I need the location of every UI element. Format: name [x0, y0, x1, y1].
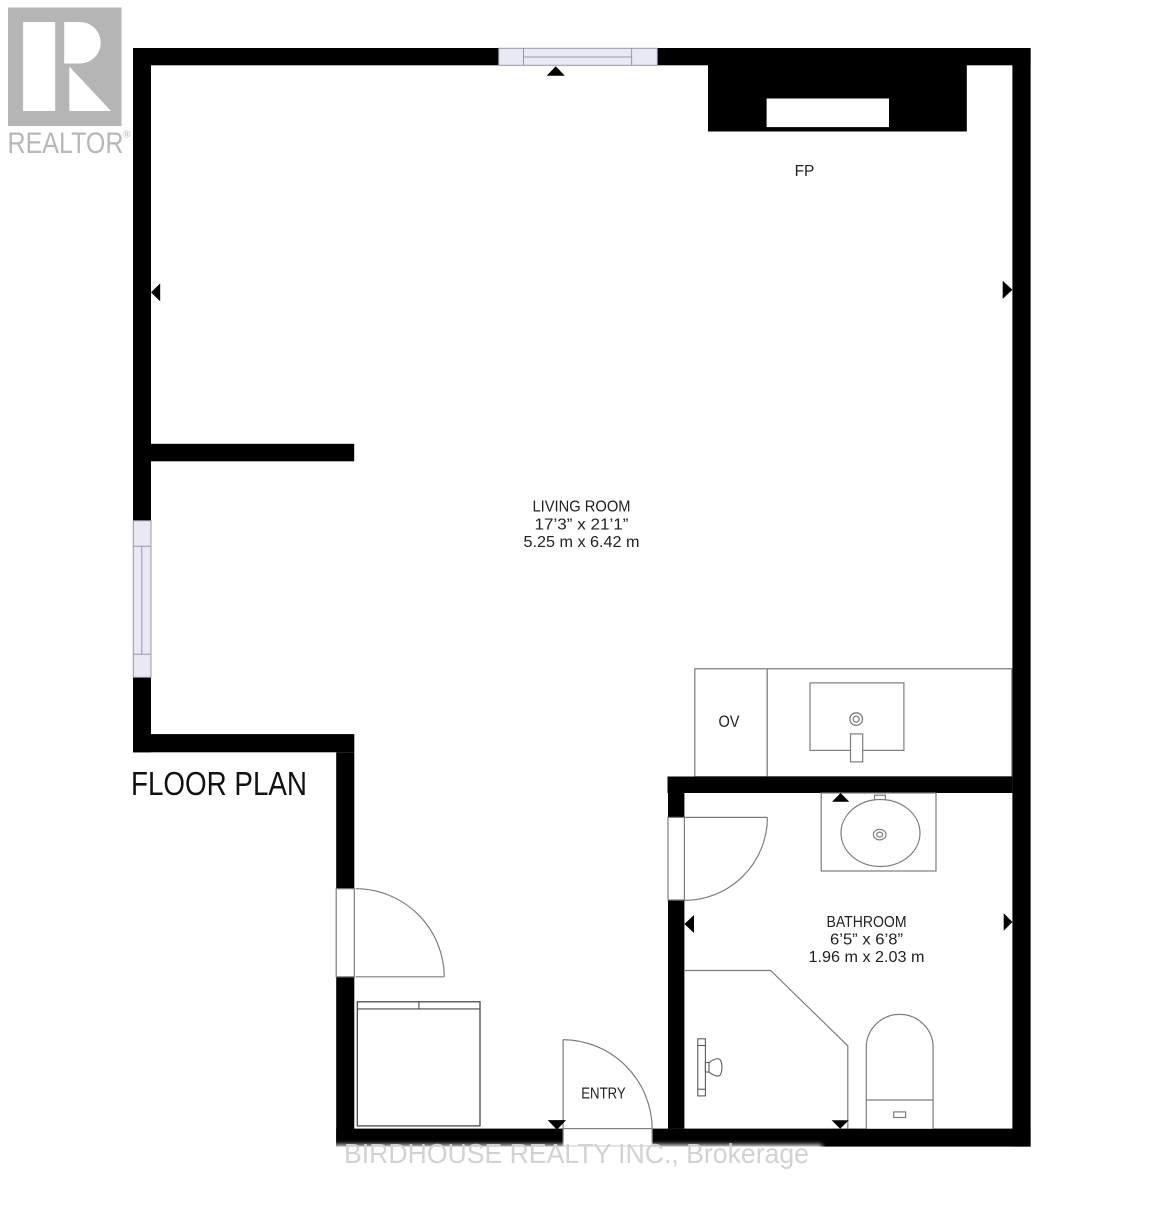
- svg-text:®: ®: [123, 130, 131, 141]
- svg-text:REALTOR: REALTOR: [8, 127, 124, 160]
- svg-text:5.25 m x 6.42 m: 5.25 m x 6.42 m: [524, 534, 640, 551]
- svg-text:LIVING ROOM: LIVING ROOM: [533, 499, 631, 516]
- svg-text:FLOOR PLAN: FLOOR PLAN: [131, 765, 307, 802]
- svg-text:6’5” x 6’8”: 6’5” x 6’8”: [830, 932, 903, 949]
- svg-text:BATHROOM: BATHROOM: [827, 914, 907, 931]
- svg-text:ENTRY: ENTRY: [581, 1086, 626, 1103]
- svg-text:FP: FP: [795, 163, 815, 180]
- svg-text:OV: OV: [719, 713, 740, 731]
- svg-text:BIRDHOUSE REALTY INC., Brokera: BIRDHOUSE REALTY INC., Brokerage: [344, 1138, 809, 1169]
- svg-text:1.96 m x 2.03 m: 1.96 m x 2.03 m: [809, 949, 925, 966]
- svg-text:17’3” x 21’1”: 17’3” x 21’1”: [535, 516, 629, 533]
